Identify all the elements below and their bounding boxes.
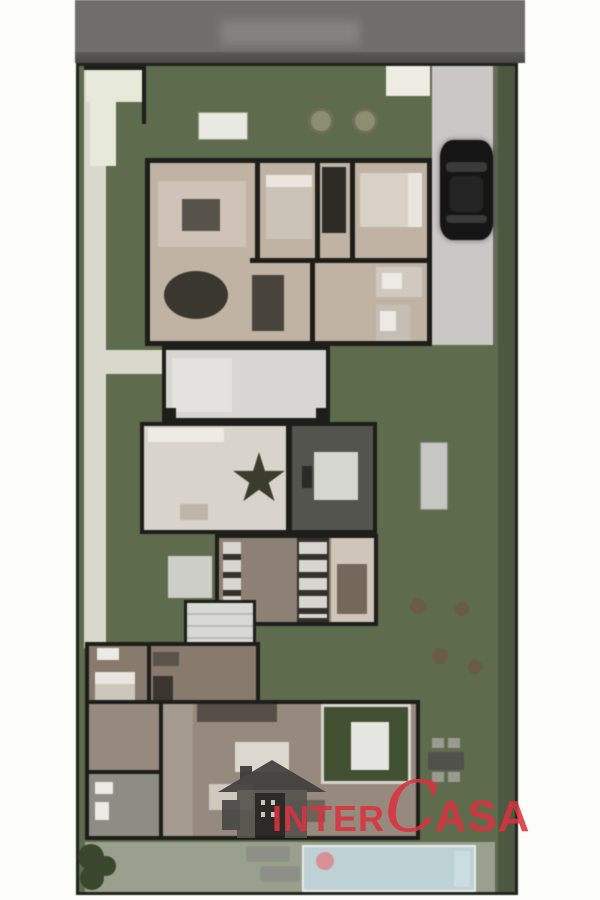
- appliance-stack: [299, 542, 327, 618]
- interior-wall: [250, 258, 427, 263]
- outdoor-chair: [448, 772, 460, 782]
- courtyard-daybed: [351, 722, 389, 770]
- hallway: [163, 704, 193, 836]
- street-curb: [75, 52, 525, 63]
- entry-path: [90, 66, 116, 166]
- bath-fixture: [95, 802, 109, 820]
- bath-fixture: [97, 648, 119, 660]
- car: [440, 140, 493, 240]
- sofa: [314, 452, 358, 500]
- appliance-row: [223, 542, 241, 602]
- utility-furniture: [337, 564, 367, 614]
- floor-plan-render: INTERCASA: [0, 0, 600, 900]
- bed-pillow: [408, 173, 422, 227]
- kitchen-counter: [197, 704, 277, 722]
- bath-fixture: [380, 311, 396, 331]
- sun-lounger: [260, 866, 300, 882]
- house-roof: [218, 760, 326, 792]
- interior-wall: [89, 770, 159, 774]
- car-windshield: [446, 162, 487, 172]
- closet: [322, 167, 346, 233]
- pillar: [166, 408, 176, 418]
- bath-fixture: [382, 273, 402, 289]
- bush: [432, 648, 448, 664]
- outdoor-chair: [432, 738, 444, 748]
- dining-table: [164, 271, 228, 319]
- interior-wall: [350, 163, 355, 258]
- terrace: [162, 346, 330, 422]
- garden-bench: [420, 442, 448, 510]
- right-hedge-strip: [498, 66, 515, 892]
- garden-chair: [352, 108, 378, 134]
- interior-wall: [310, 263, 315, 341]
- house-window: [261, 812, 265, 817]
- interior-wall: [255, 163, 260, 258]
- upper-floor-block: [145, 158, 432, 346]
- plant-star: [232, 452, 286, 506]
- patio-pad: [168, 556, 212, 598]
- pool-steps: [454, 851, 470, 887]
- outdoor-chair: [448, 738, 460, 748]
- terrace-step: [172, 358, 232, 412]
- sun-lounger: [246, 846, 290, 862]
- bed-pillow: [266, 175, 312, 187]
- coffee-table: [182, 199, 220, 231]
- bath-fixture: [95, 782, 113, 794]
- interior-wall: [315, 163, 320, 258]
- gate-pad: [386, 66, 430, 96]
- garden-table: [198, 112, 248, 140]
- tv-wall: [286, 426, 292, 530]
- entry-wall: [84, 66, 146, 70]
- kitchen-island: [252, 275, 284, 331]
- driveway-edge: [493, 66, 496, 345]
- shrub: [96, 856, 116, 876]
- house-wing: [222, 800, 240, 830]
- brand-watermark: INTERCASA: [272, 792, 530, 836]
- car-roof: [450, 176, 483, 212]
- side-table: [180, 504, 208, 520]
- bed-pillow: [95, 672, 135, 684]
- pillar: [316, 408, 326, 418]
- bush: [410, 598, 426, 614]
- dresser: [153, 652, 179, 666]
- house-window: [261, 800, 265, 805]
- kitchen-counter: [148, 428, 224, 442]
- street-name-smudge: [220, 20, 360, 46]
- car-rear-window: [446, 215, 487, 223]
- garden-chair: [308, 108, 334, 134]
- brand-text-inter: INTER: [272, 798, 385, 840]
- tv-unit: [302, 466, 312, 488]
- pool-float: [316, 852, 334, 870]
- bush: [455, 602, 469, 616]
- ground-floor-block: [140, 422, 377, 534]
- bush: [468, 660, 482, 674]
- entry-wall: [142, 66, 146, 124]
- brand-text-asa: ASA: [435, 792, 531, 842]
- walkway-branch: [84, 350, 162, 374]
